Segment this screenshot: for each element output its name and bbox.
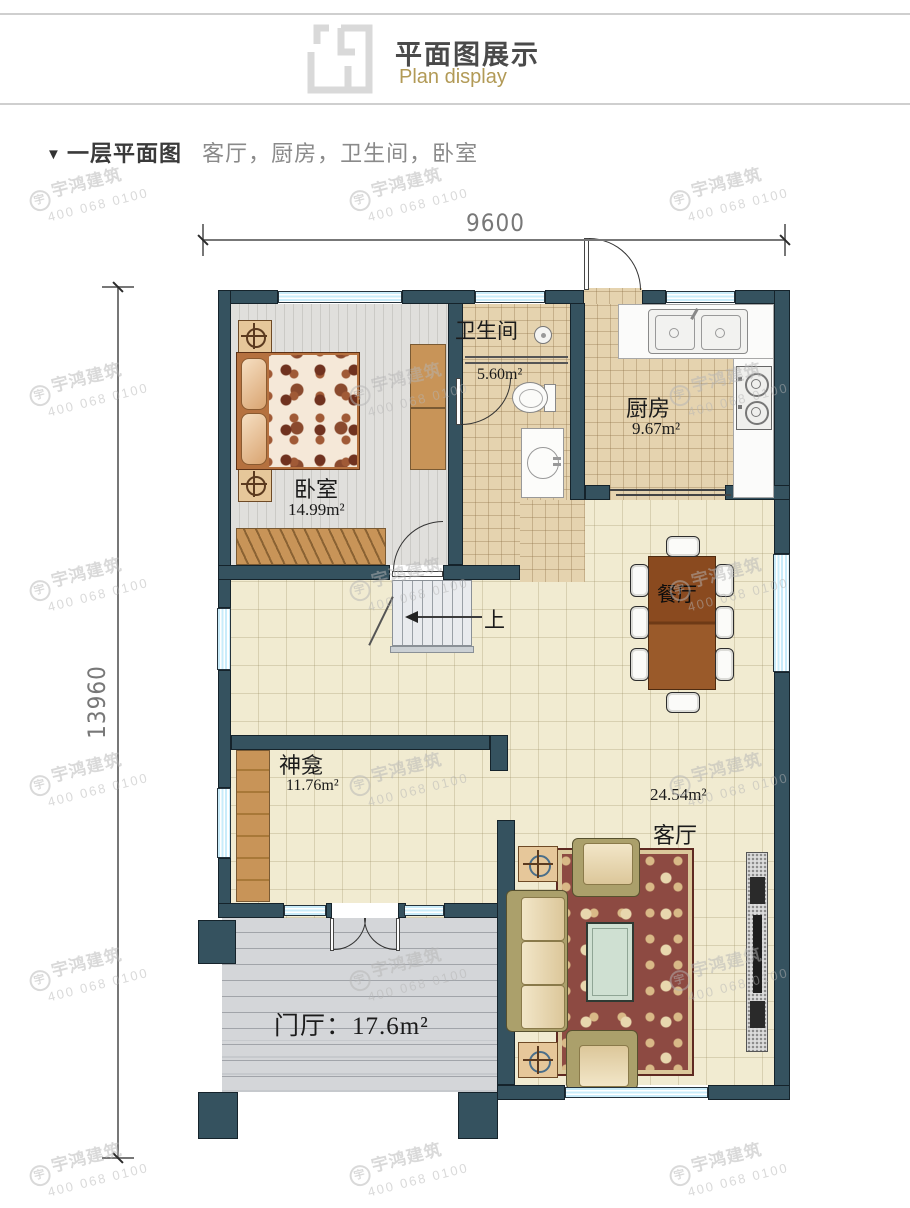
stairs-up-label: 上 [484,604,505,634]
shrine-label: 神龛 [279,748,323,780]
staircase [392,580,472,646]
header-bottom-divider [0,103,910,105]
wall-segment [218,565,390,580]
wall-segment [708,1085,790,1100]
bathroom-door-leaf [456,378,461,425]
page: { "header": { "title": "平面图展示", "subtitl… [0,0,910,1208]
window [404,905,444,916]
dining-chair [630,606,649,639]
floor-bath-passage [520,500,585,582]
wall-segment [774,672,790,1100]
window [284,905,326,916]
bathroom-area: 5.60m² [477,366,522,384]
wall-segment [218,670,231,788]
brand-watermark: 宇宇鸿建筑400 068 0100 [25,532,201,618]
armchair-bottom [566,1030,638,1090]
stair-arrow-icon [405,611,418,623]
bath-fixture [534,326,552,344]
kitchen-sliding-door [616,494,731,496]
kitchen-sink [648,309,748,354]
side-table-bottom [518,1042,558,1078]
window [475,291,545,303]
nightstand-bottom [238,468,272,502]
wall-segment [497,1085,565,1100]
brand-logo-icon: 宇 [347,1163,372,1188]
bath-partition-line [465,362,568,364]
stair-direction-line [416,616,482,618]
wall-segment [490,735,508,771]
entry-door-leaf-left [330,918,334,951]
bedroom-dresser [410,344,446,470]
speaker [750,877,765,904]
altar-cabinet [236,750,270,902]
brand-logo-icon: 宇 [27,578,52,603]
brand-logo-icon: 宇 [27,773,52,798]
pillow [241,358,267,410]
living-area: 24.54m² [650,785,707,805]
dimension-line-left [117,287,119,1159]
staircase-edge [390,646,474,653]
bath-partition-line [465,356,568,358]
foyer-label: 门厅：17.6m² [274,1006,429,1042]
kitchen-door-threshold [584,288,642,304]
tv-cabinet [746,852,768,1052]
section-heading: ▼ 一层平面图 客厅，厨房，卫生间，卧室 [46,136,478,168]
wall-segment [585,485,610,500]
living-label: 客厅 [653,818,697,850]
kitchen-stove [736,366,772,430]
dimension-width: 9600 [466,209,525,237]
bathroom-label: 卫生间 [455,315,518,345]
brand-watermark: 宇宇鸿建筑400 068 0100 [25,922,201,1008]
kitchen-door-arc [589,238,641,290]
wall-segment [402,290,475,304]
brand-watermark: 宇宇鸿建筑400 068 0100 [665,142,841,228]
header-top-divider [0,13,910,15]
brand-watermark: 宇宇鸿建筑400 068 0100 [25,337,201,423]
dining-chair [666,536,700,557]
window [278,291,402,303]
entry-door-opening [330,903,400,918]
toilet-bowl [512,382,548,413]
bed [236,352,360,470]
brand-watermark: 宇宇鸿建筑400 068 0100 [25,727,201,813]
section-title: 一层平面图 [67,141,182,166]
window [666,291,735,303]
wall-segment [198,1092,238,1139]
window [565,1087,708,1098]
brand-watermark: 宇宇鸿建筑400 068 0100 [665,1117,841,1203]
porch-steps [222,1040,497,1092]
dining-chair [715,606,734,639]
coffee-table [586,922,634,1002]
dining-table [648,556,716,690]
pillow [241,413,267,465]
wall-segment [198,920,236,964]
kitchen-area: 9.67m² [632,419,680,439]
section-room-list: 客厅，厨房，卫生间，卧室 [202,141,478,166]
wall-segment [458,1092,498,1139]
dining-chair [630,648,649,681]
wall-segment [545,290,584,304]
bed-quilt [269,355,357,467]
wall-segment [570,303,585,500]
nightstand-top [238,320,272,354]
sofa-cushion [521,897,565,941]
wall-segment [443,565,520,580]
kitchen-sliding-door [610,489,725,491]
window [773,554,790,672]
kitchen-door-leaf [584,238,589,290]
wardrobe [236,528,386,565]
dining-chair [715,648,734,681]
brand-watermark: 宇宇鸿建筑400 068 0100 [25,1117,201,1203]
tv [753,915,762,993]
window [217,788,231,858]
wall-segment [326,903,332,918]
brand-logo-icon: 宇 [667,1163,692,1188]
wall-segment [218,290,231,608]
shrine-area: 11.76m² [286,777,339,795]
brand-logo-icon: 宇 [27,383,52,408]
sofa [506,890,568,1032]
side-table-top [518,846,558,882]
washbasin [521,428,564,498]
dimension-height: 13960 [83,665,111,739]
page-subtitle: Plan display [399,66,507,89]
wall-segment [218,903,284,918]
floor-plan-icon [303,22,375,101]
sofa-cushion [521,941,565,985]
dining-chair [630,564,649,597]
brand-logo-icon: 宇 [347,188,372,213]
wall-segment [642,290,666,304]
sofa-cushion [521,985,565,1029]
dimension-line-top [202,239,786,241]
brand-logo-icon: 宇 [27,188,52,213]
dining-label: 餐厅 [657,578,697,607]
entry-door-leaf-right [396,918,400,951]
triangle-marker-icon: ▼ [46,146,61,163]
brand-logo-icon: 宇 [667,188,692,213]
bedroom-area: 14.99m² [288,500,345,520]
dining-chair [666,692,700,713]
wall-segment [774,290,790,554]
wall-segment [231,735,490,750]
brand-logo-icon: 宇 [27,1163,52,1188]
bedroom-door-leaf [392,571,443,577]
dining-chair [715,564,734,597]
window [217,608,231,670]
speaker [750,1001,765,1028]
armchair-top [572,838,640,897]
brand-logo-icon: 宇 [27,968,52,993]
